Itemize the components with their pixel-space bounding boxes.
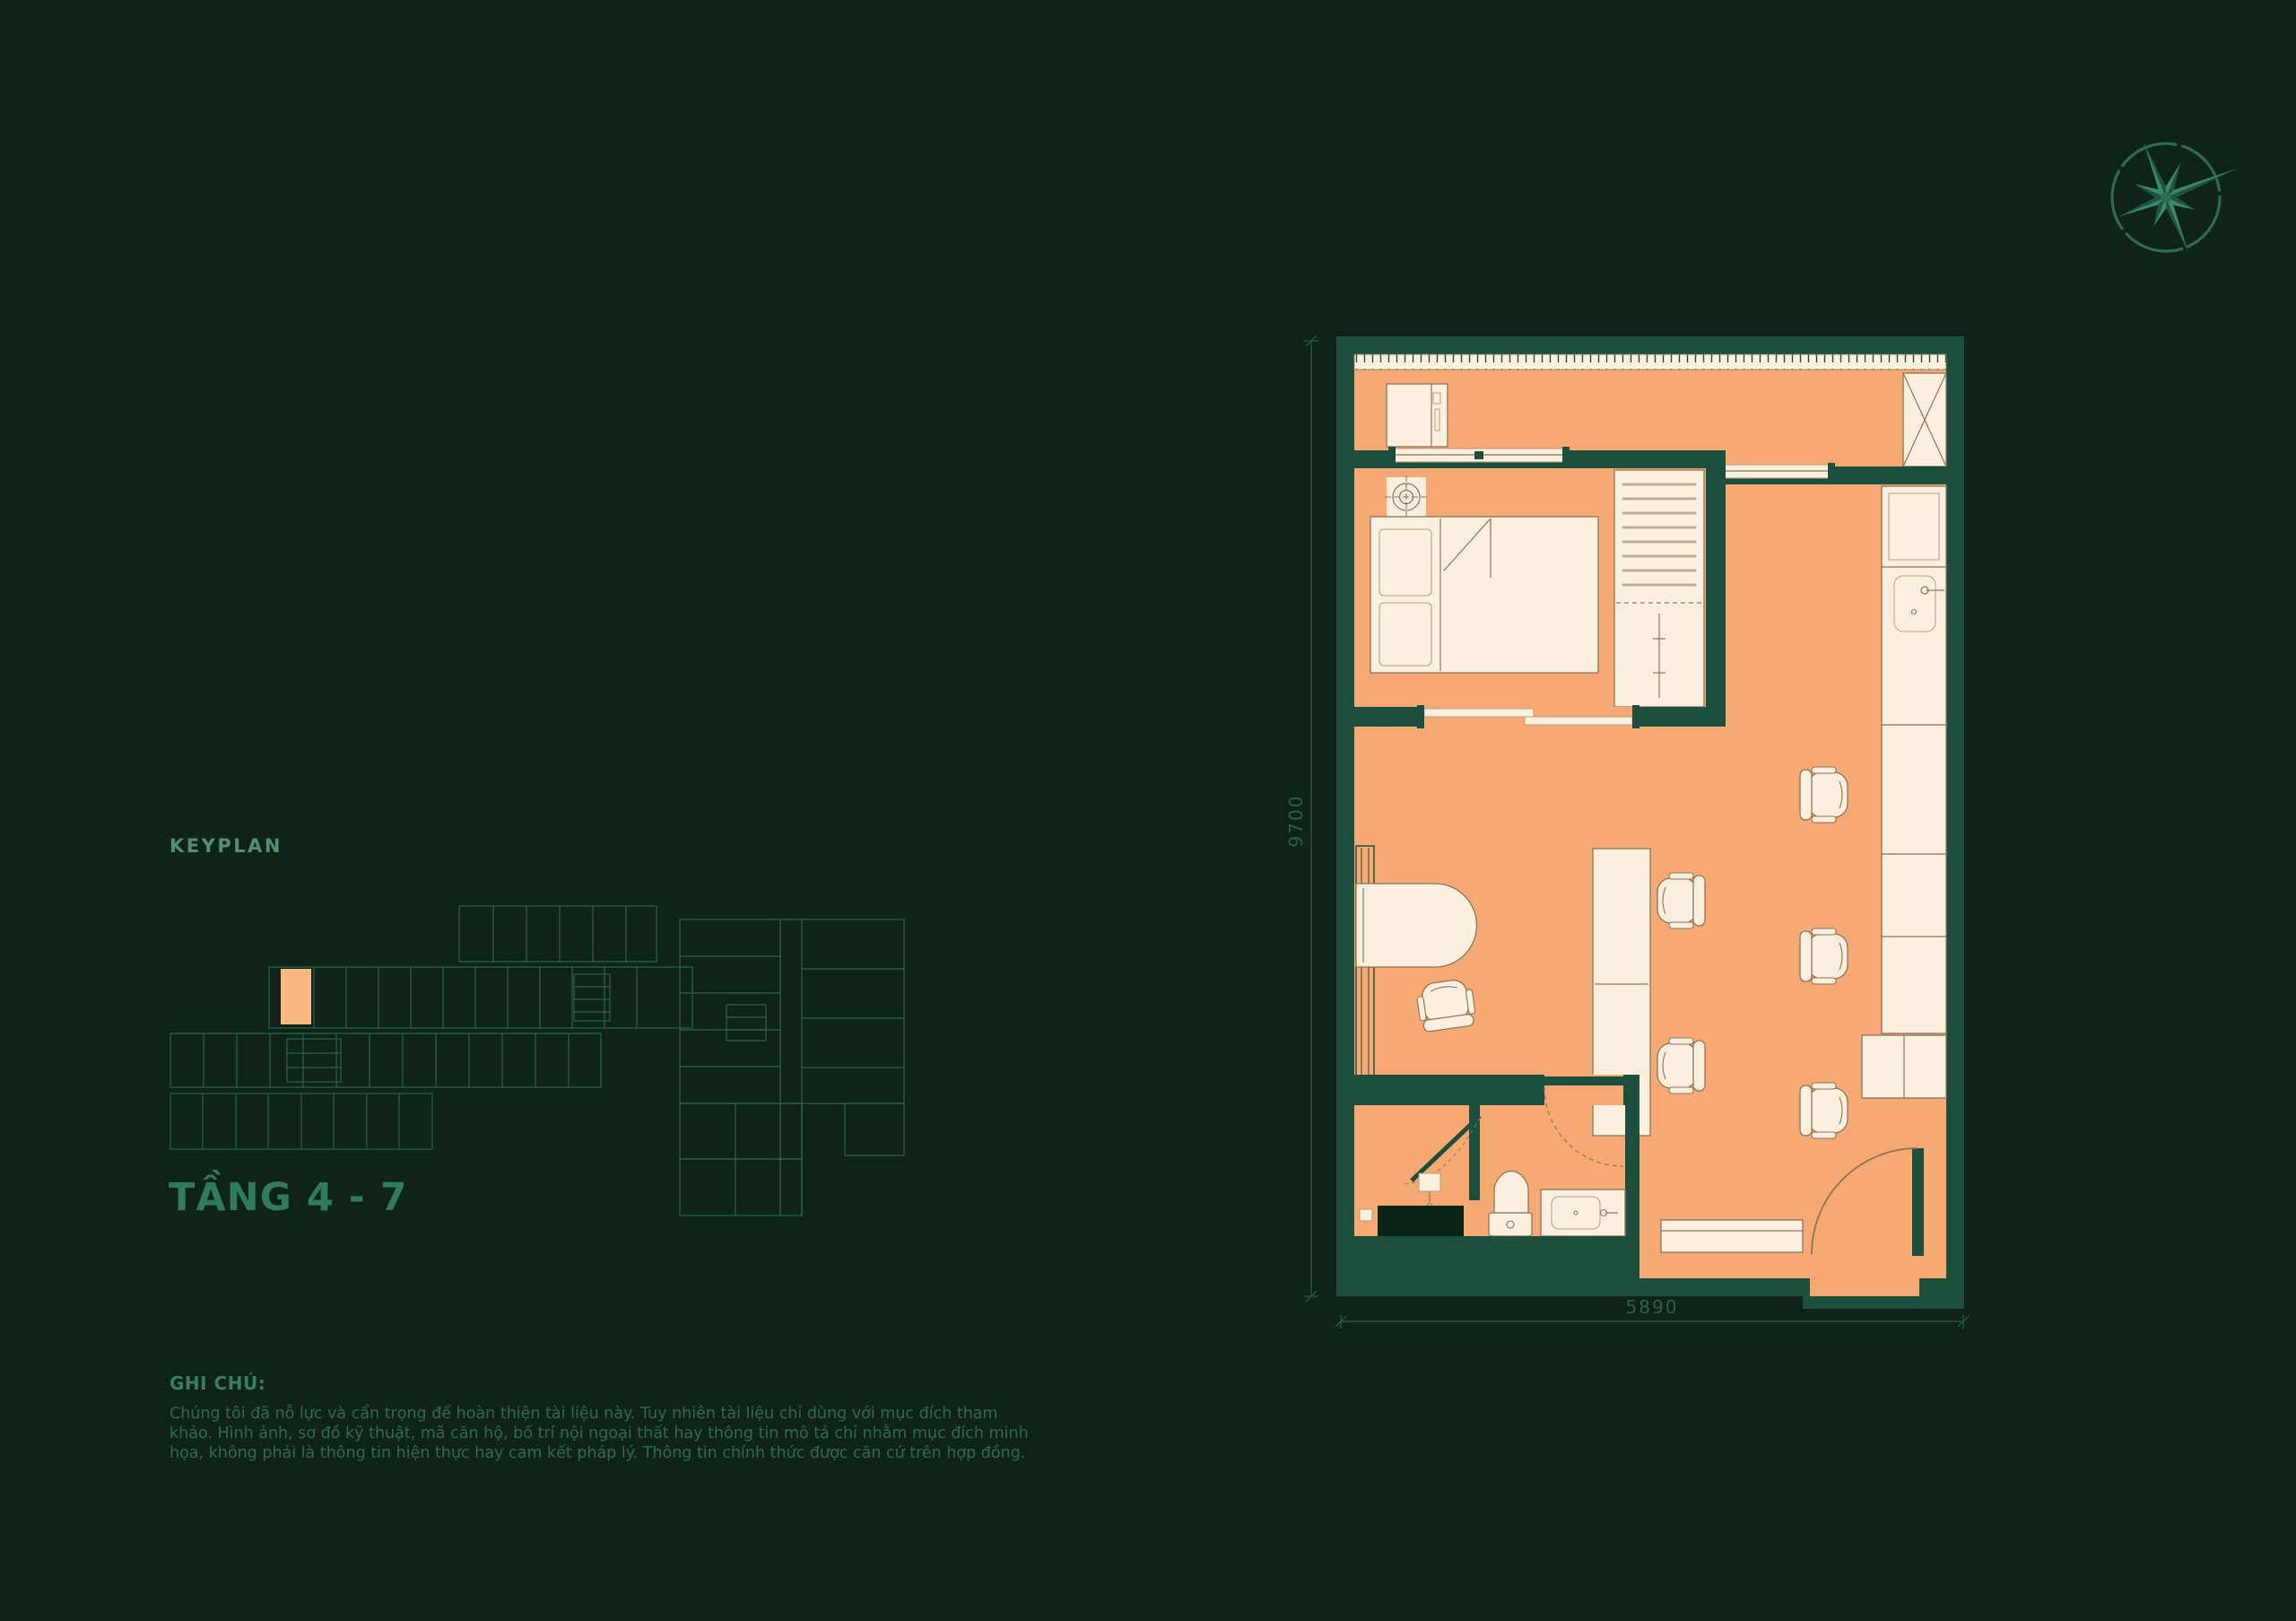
notes-title: GHI CHÚ: bbox=[170, 1373, 1048, 1394]
apartment-floor-plan: 9700 5890 bbox=[1256, 305, 2027, 1364]
brochure-page: { "colors": { "background": "#10231b", "… bbox=[0, 0, 2296, 1621]
table-chair bbox=[1657, 873, 1705, 928]
counter-chair bbox=[1800, 767, 1848, 823]
floor-range-title: TẦNG 4 - 7 bbox=[169, 1175, 408, 1220]
keyplan-left-tower bbox=[170, 906, 692, 1149]
kitchen-window bbox=[1711, 463, 1835, 481]
window-band bbox=[1354, 354, 1946, 370]
counter-chair bbox=[1800, 928, 1848, 984]
ceiling-light-symbol bbox=[1385, 475, 1428, 519]
wardrobe bbox=[1614, 470, 1704, 707]
dimension-height-label: 9700 bbox=[1285, 795, 1307, 848]
notes-body: Chúng tôi đã nỗ lực và cẩn trọng để hoàn… bbox=[170, 1404, 1031, 1463]
bedroom-sliding-door bbox=[1417, 705, 1639, 728]
interior-wall bbox=[1706, 450, 1726, 727]
entry-bench bbox=[1661, 1220, 1803, 1252]
bathroom-sink bbox=[1541, 1190, 1625, 1236]
keyplan-title: KEYPLAN bbox=[170, 835, 283, 857]
dimension-width-label: 5890 bbox=[1626, 1296, 1679, 1318]
table-chair bbox=[1657, 1038, 1705, 1094]
floor-drain bbox=[1360, 1209, 1372, 1221]
balcony-cabinet bbox=[1387, 384, 1448, 447]
compass-rose-icon bbox=[2085, 115, 2247, 276]
keyplan-right-tower bbox=[680, 919, 904, 1216]
dimension-height: 9700 bbox=[1285, 336, 1318, 1302]
keyplan-drawing bbox=[152, 897, 924, 1220]
technical-shaft bbox=[1903, 373, 1946, 466]
counter-chair bbox=[1800, 1083, 1848, 1138]
bedroom-window bbox=[1388, 447, 1570, 465]
desk bbox=[1356, 884, 1477, 967]
notes-section: GHI CHÚ: Chúng tôi đã nỗ lực và cẩn trọn… bbox=[170, 1373, 1048, 1463]
bathroom-door bbox=[1543, 1076, 1623, 1085]
bed bbox=[1370, 517, 1598, 673]
compass-star bbox=[2095, 115, 2247, 272]
keyplan-highlighted-unit bbox=[281, 969, 311, 1024]
